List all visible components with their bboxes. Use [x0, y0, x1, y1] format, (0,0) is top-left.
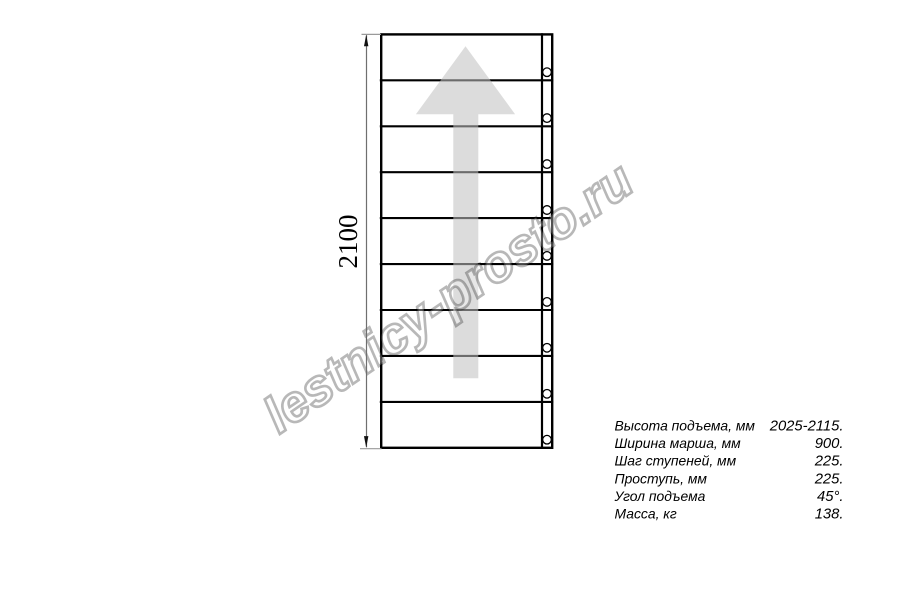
svg-text:138.: 138. [815, 507, 844, 523]
svg-text:2100: 2100 [333, 215, 363, 269]
svg-text:Ширина марша, мм: Ширина марша, мм [615, 435, 742, 451]
svg-text:Высота подъема, мм: Высота подъема, мм [615, 417, 756, 433]
svg-text:Угол подъема: Угол подъема [614, 488, 706, 504]
svg-text:2025-2115.: 2025-2115. [769, 418, 844, 434]
svg-text:Шаг ступеней, мм: Шаг ступеней, мм [615, 453, 737, 469]
svg-text:900.: 900. [815, 436, 844, 452]
svg-text:225.: 225. [814, 471, 844, 487]
svg-text:Проступь, мм: Проступь, мм [615, 470, 708, 486]
svg-text:45°.: 45°. [817, 489, 844, 505]
svg-text:Масса, кг: Масса, кг [615, 506, 677, 522]
svg-text:225.: 225. [814, 454, 844, 470]
